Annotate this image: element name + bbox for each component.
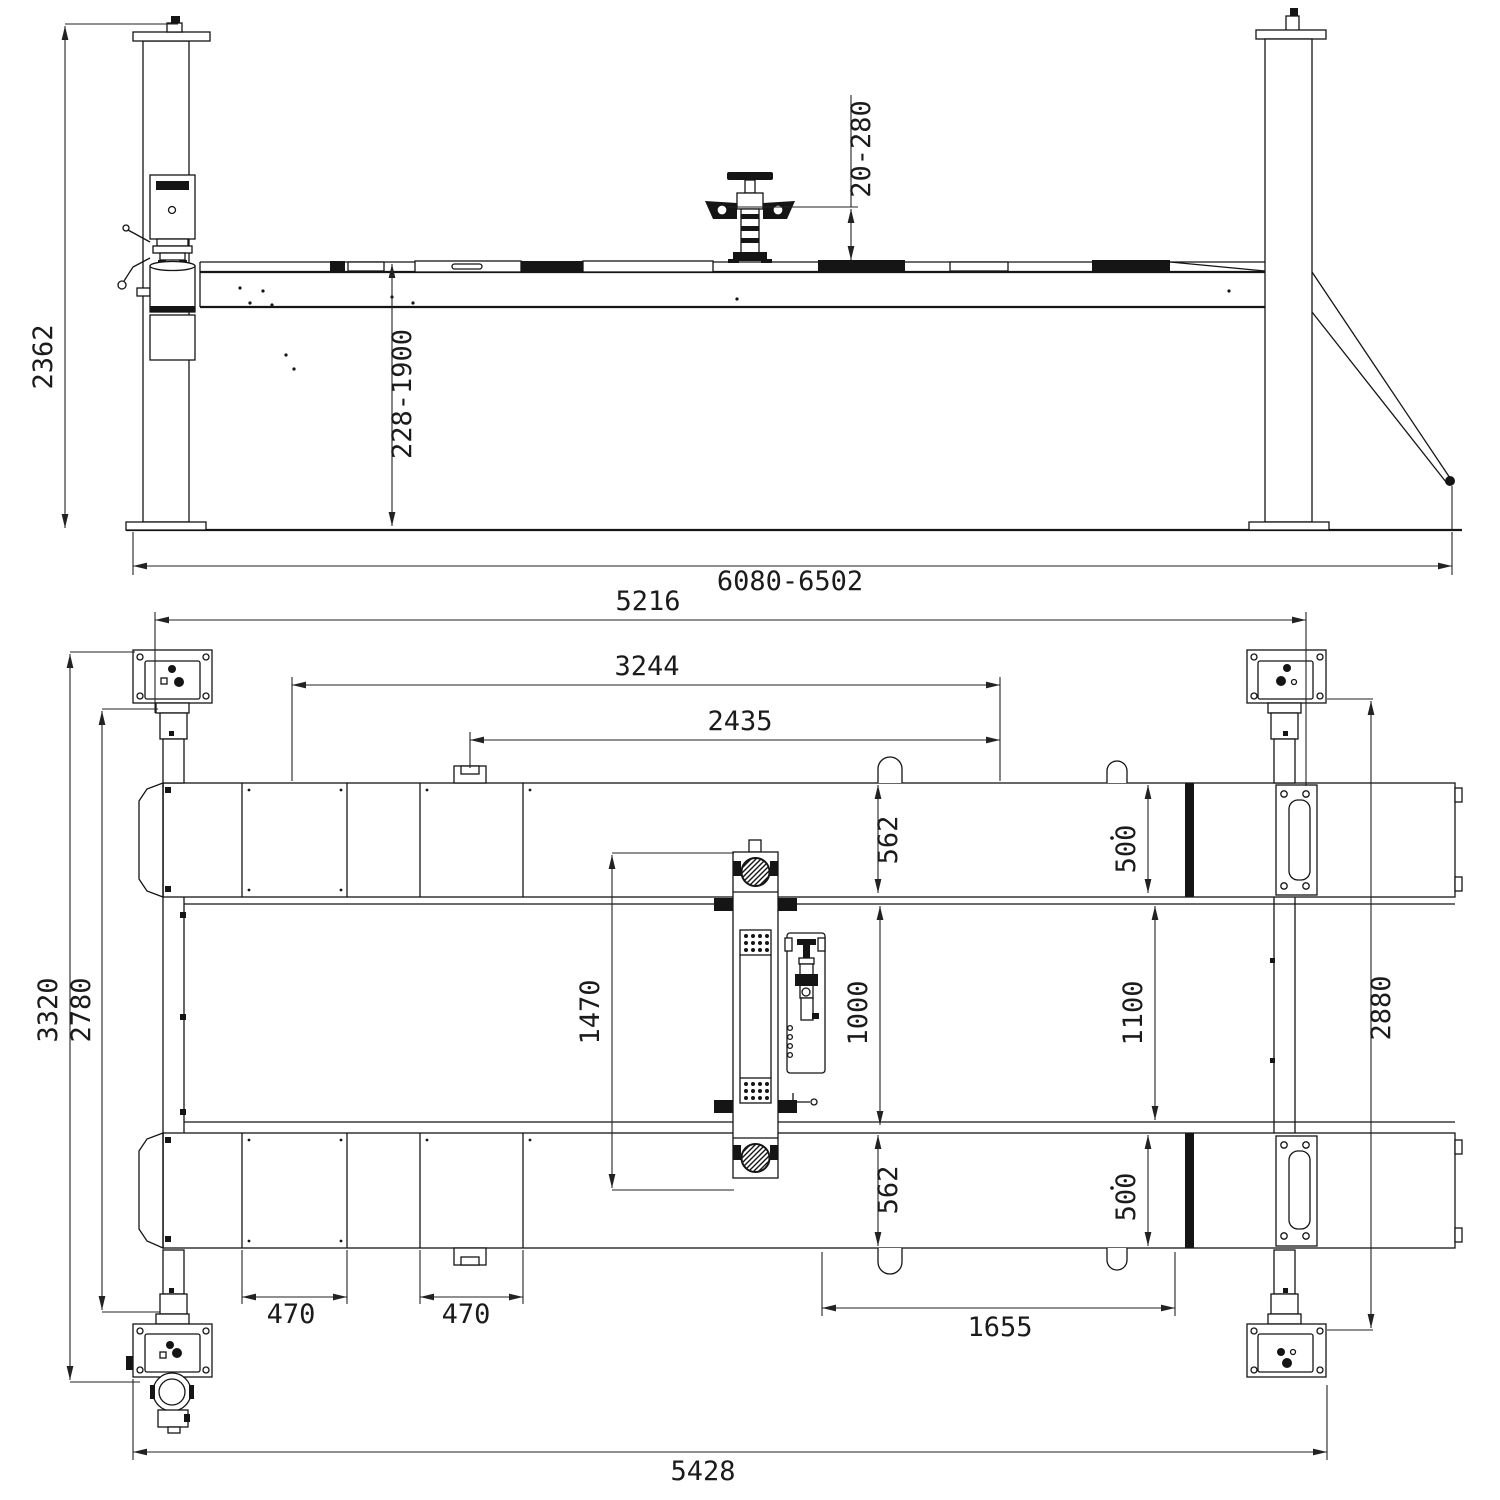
post-plate-bottom-left xyxy=(126,1250,212,1433)
dim-base-length: 5428 xyxy=(133,1379,1327,1487)
dim-span-2435: 2435 xyxy=(470,706,1000,768)
dim-1470-label: 1470 xyxy=(575,979,606,1044)
post-plate-bottom-right xyxy=(1247,1250,1326,1377)
dim-470a-label: 470 xyxy=(267,1299,316,1330)
dim-pad-height-label: 20-280 xyxy=(846,100,877,198)
dim-lifting-height-label: 228-1900 xyxy=(387,329,418,459)
dim-562-top-label: 562 xyxy=(873,816,904,865)
tire-stop-hook xyxy=(878,1248,902,1274)
dim-1655-label: 1655 xyxy=(967,1312,1032,1343)
runway-side xyxy=(200,260,1265,371)
tire-stop-hook xyxy=(1107,1248,1127,1270)
tire-stop-hook xyxy=(878,757,902,783)
tire-stop-hook xyxy=(1107,761,1127,783)
dim-overall-length-range: 6080-6502 xyxy=(133,532,1452,597)
ramp-end-tab xyxy=(1455,1228,1462,1242)
drawing-sheet: 2362 20-280 228-1900 6080-6502 xyxy=(0,0,1500,1500)
dim-2880-label: 2880 xyxy=(1366,975,1397,1040)
ramp-roller xyxy=(1445,476,1455,486)
runway-divider xyxy=(1185,1133,1194,1248)
plan-view: 5216 3244 2435 562 500 1470 xyxy=(33,586,1462,1487)
dim-overall-length-label: 6080-6502 xyxy=(717,566,863,597)
dim-segment-front: 470 xyxy=(242,1250,347,1330)
rubber-pad-bottom xyxy=(740,1078,771,1103)
jack-roller-top xyxy=(742,858,770,886)
dim-1100-label: 1100 xyxy=(1118,980,1149,1045)
runway-divider xyxy=(1185,783,1194,897)
crossbeam-right-plan xyxy=(1270,897,1295,1133)
dim-post-span-label: 5216 xyxy=(615,586,680,617)
dim-runway-gap-max: 1100 xyxy=(1118,906,1155,1120)
ramp-end-tab xyxy=(1455,877,1462,891)
right-post-side xyxy=(1249,8,1329,530)
side-elevation-view: 2362 20-280 228-1900 6080-6502 xyxy=(28,8,1462,597)
power-unit-plan xyxy=(150,1373,194,1433)
rubber-pad-top xyxy=(740,930,771,955)
crossbeam-left-plan xyxy=(163,897,186,1133)
dim-5428-label: 5428 xyxy=(670,1456,735,1487)
hydraulic-power-unit-side xyxy=(118,175,195,360)
runway-end-cap xyxy=(139,783,163,897)
jack-roller-bottom xyxy=(742,1144,770,1172)
dim-470b-label: 470 xyxy=(442,1299,491,1330)
runway-bottom-plan xyxy=(139,1133,1462,1274)
dim-runway-gap-min: 1000 xyxy=(843,906,880,1125)
oil-tank xyxy=(150,266,195,312)
dim-562-bottom-label: 562 xyxy=(873,1166,904,1215)
dim-post-span: 5216 xyxy=(155,586,1306,786)
post-plate-top-left xyxy=(133,650,212,783)
jack-latch-unit xyxy=(785,933,825,1105)
dim-overall-height-label: 2362 xyxy=(28,324,59,389)
ramp-end-tab xyxy=(1455,1140,1462,1154)
dim-3320-label: 3320 xyxy=(33,977,64,1042)
dim-500-bottom-label: 500 xyxy=(1111,1173,1142,1222)
runway-end-cap xyxy=(139,1133,163,1248)
dim-500-top-label: 500 xyxy=(1111,825,1142,874)
drive-on-ramp-side xyxy=(1312,272,1455,530)
runway-top-plan xyxy=(139,757,1462,897)
dim-2780-label: 2780 xyxy=(66,977,97,1042)
dim-span-3244-label: 3244 xyxy=(614,651,679,682)
post-plate-top-right xyxy=(1247,650,1326,783)
four-post-lift-drawing: 2362 20-280 228-1900 6080-6502 xyxy=(0,0,1500,1500)
dim-1000-label: 1000 xyxy=(843,980,874,1045)
jack-side xyxy=(705,172,795,263)
ramp-end-tab xyxy=(1455,788,1462,802)
dim-span-2435-label: 2435 xyxy=(707,706,772,737)
